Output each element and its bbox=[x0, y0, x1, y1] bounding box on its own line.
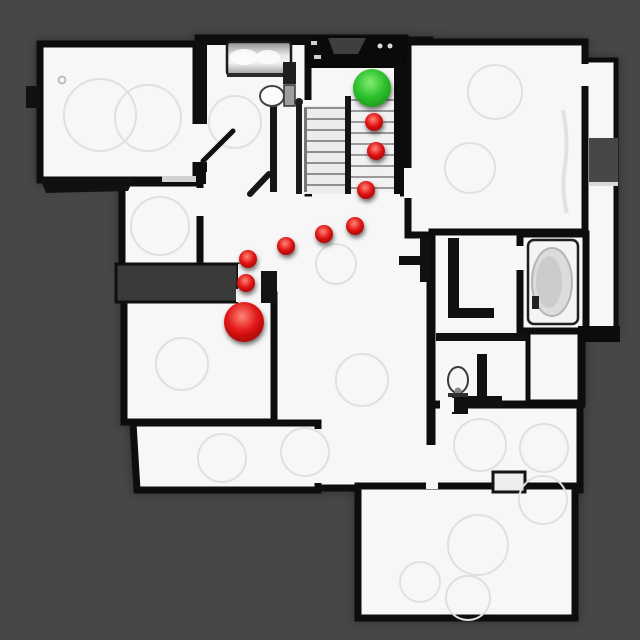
door-toilet-room bbox=[440, 398, 454, 412]
waypoint-marker bbox=[367, 142, 385, 160]
waypoint-marker bbox=[315, 225, 333, 243]
wall-closet-stub bbox=[448, 308, 494, 318]
waypoint-marker bbox=[346, 217, 364, 235]
strip-notch bbox=[589, 138, 618, 184]
waypoint-marker bbox=[277, 237, 295, 255]
door-bathroom bbox=[516, 246, 526, 270]
stairs-edge-shade bbox=[304, 108, 307, 192]
strip-notch-sill bbox=[589, 182, 618, 186]
wall-toilet-room-top bbox=[436, 333, 528, 341]
banister-inner bbox=[270, 98, 277, 192]
door-right-strip bbox=[580, 64, 590, 86]
door-top-right-bedroom bbox=[404, 168, 416, 198]
wall-band-hall-bedroom bbox=[116, 264, 238, 302]
agent-marker bbox=[224, 302, 264, 342]
banister-outer bbox=[296, 102, 302, 194]
waypoint-marker bbox=[365, 113, 383, 131]
opening-topmiddle-hall bbox=[206, 172, 304, 186]
waypoint-marker bbox=[237, 274, 255, 292]
waypoint-marker bbox=[357, 181, 375, 199]
scan-dot-icon bbox=[388, 44, 393, 49]
goal-marker bbox=[353, 69, 391, 107]
wall-closet-vertical bbox=[448, 238, 459, 318]
wall-bedroom-bottom-slant bbox=[40, 178, 134, 193]
waypoint-marker bbox=[239, 250, 257, 268]
dresser-edge bbox=[227, 73, 291, 77]
dresser-pillow bbox=[256, 50, 280, 64]
wall-toilet-room-stub bbox=[477, 354, 487, 400]
door-corridor bbox=[194, 188, 206, 216]
door-threshold-family-room bbox=[493, 472, 525, 492]
wall-door-jamb bbox=[261, 271, 277, 303]
dresser-pillow bbox=[230, 49, 258, 65]
bathtub-basin-inner bbox=[536, 256, 562, 308]
toilet-upper bbox=[260, 86, 284, 106]
room-bottom-family bbox=[358, 486, 575, 618]
toilet-lower-base bbox=[448, 393, 468, 397]
scan-tick-icon bbox=[311, 41, 317, 45]
stairs-stringer bbox=[345, 96, 351, 194]
wall-middle-left-lower bbox=[196, 160, 207, 184]
room-top-right-bedroom bbox=[408, 42, 585, 235]
banister-knob-icon bbox=[295, 98, 303, 106]
scan-tick-icon bbox=[314, 55, 321, 59]
window-sill bbox=[162, 176, 196, 182]
opening-hall-right-lower bbox=[426, 445, 438, 489]
bathtub-drain bbox=[532, 296, 539, 309]
scan-dot-icon bbox=[378, 44, 383, 49]
wall-closet-jog-2 bbox=[399, 256, 429, 265]
room-right-strip bbox=[586, 60, 616, 332]
floorplan-map bbox=[0, 0, 640, 640]
stairs-right-wall bbox=[394, 60, 403, 194]
wall-stub-left-exterior bbox=[26, 86, 40, 108]
wall-strip-cap bbox=[578, 326, 620, 342]
screenshot-stage bbox=[0, 0, 640, 640]
room-closet bbox=[528, 332, 580, 402]
shelf bbox=[283, 62, 296, 84]
toilet-upper-tank bbox=[284, 85, 295, 106]
wall-middle-left-upper bbox=[196, 42, 207, 126]
